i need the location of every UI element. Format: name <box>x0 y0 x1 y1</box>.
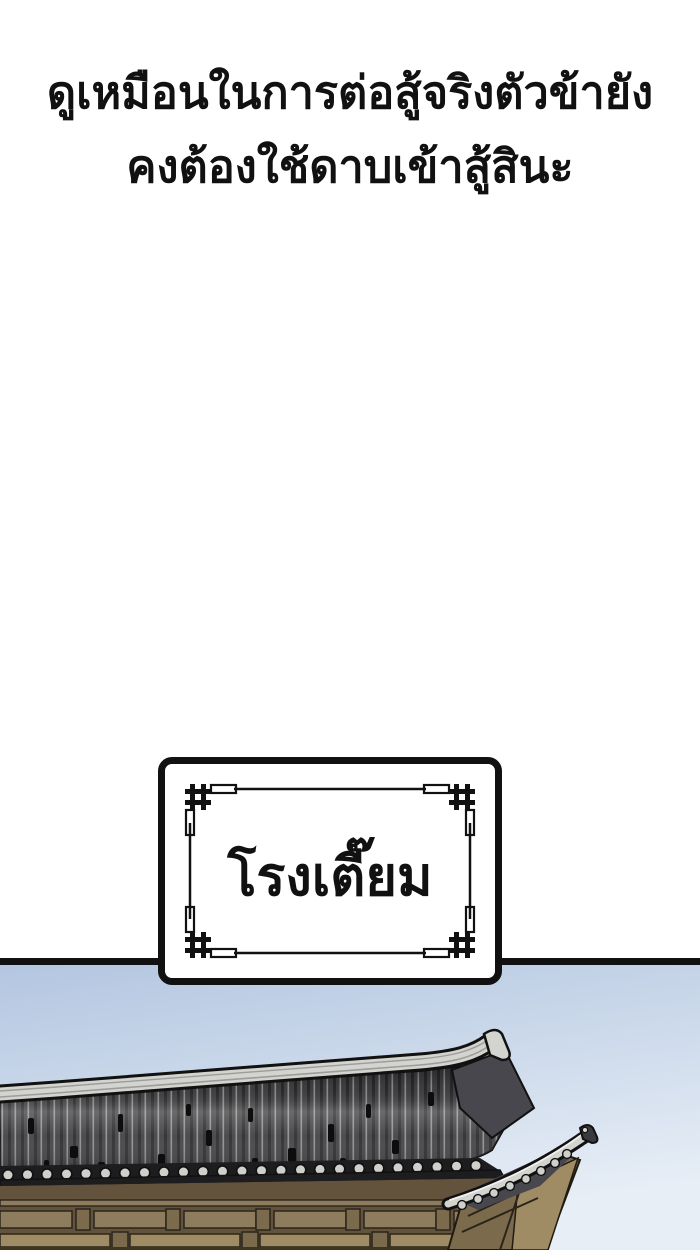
narration-line-1: ดูเหมือนในการต่อสู้จริงตัวข้ายัง <box>0 56 700 130</box>
narration-text: ดูเหมือนในการต่อสู้จริงตัวข้ายัง คงต้องใ… <box>0 56 700 204</box>
scene-illustration <box>0 958 700 1250</box>
scene-panel <box>0 958 700 1250</box>
sign-label: โรงเตี๊ยม <box>227 823 432 919</box>
narration-line-2: คงต้องใช้ดาบเข้าสู้สินะ <box>0 130 700 204</box>
inn-sign: โรงเตี๊ยม <box>158 757 502 985</box>
